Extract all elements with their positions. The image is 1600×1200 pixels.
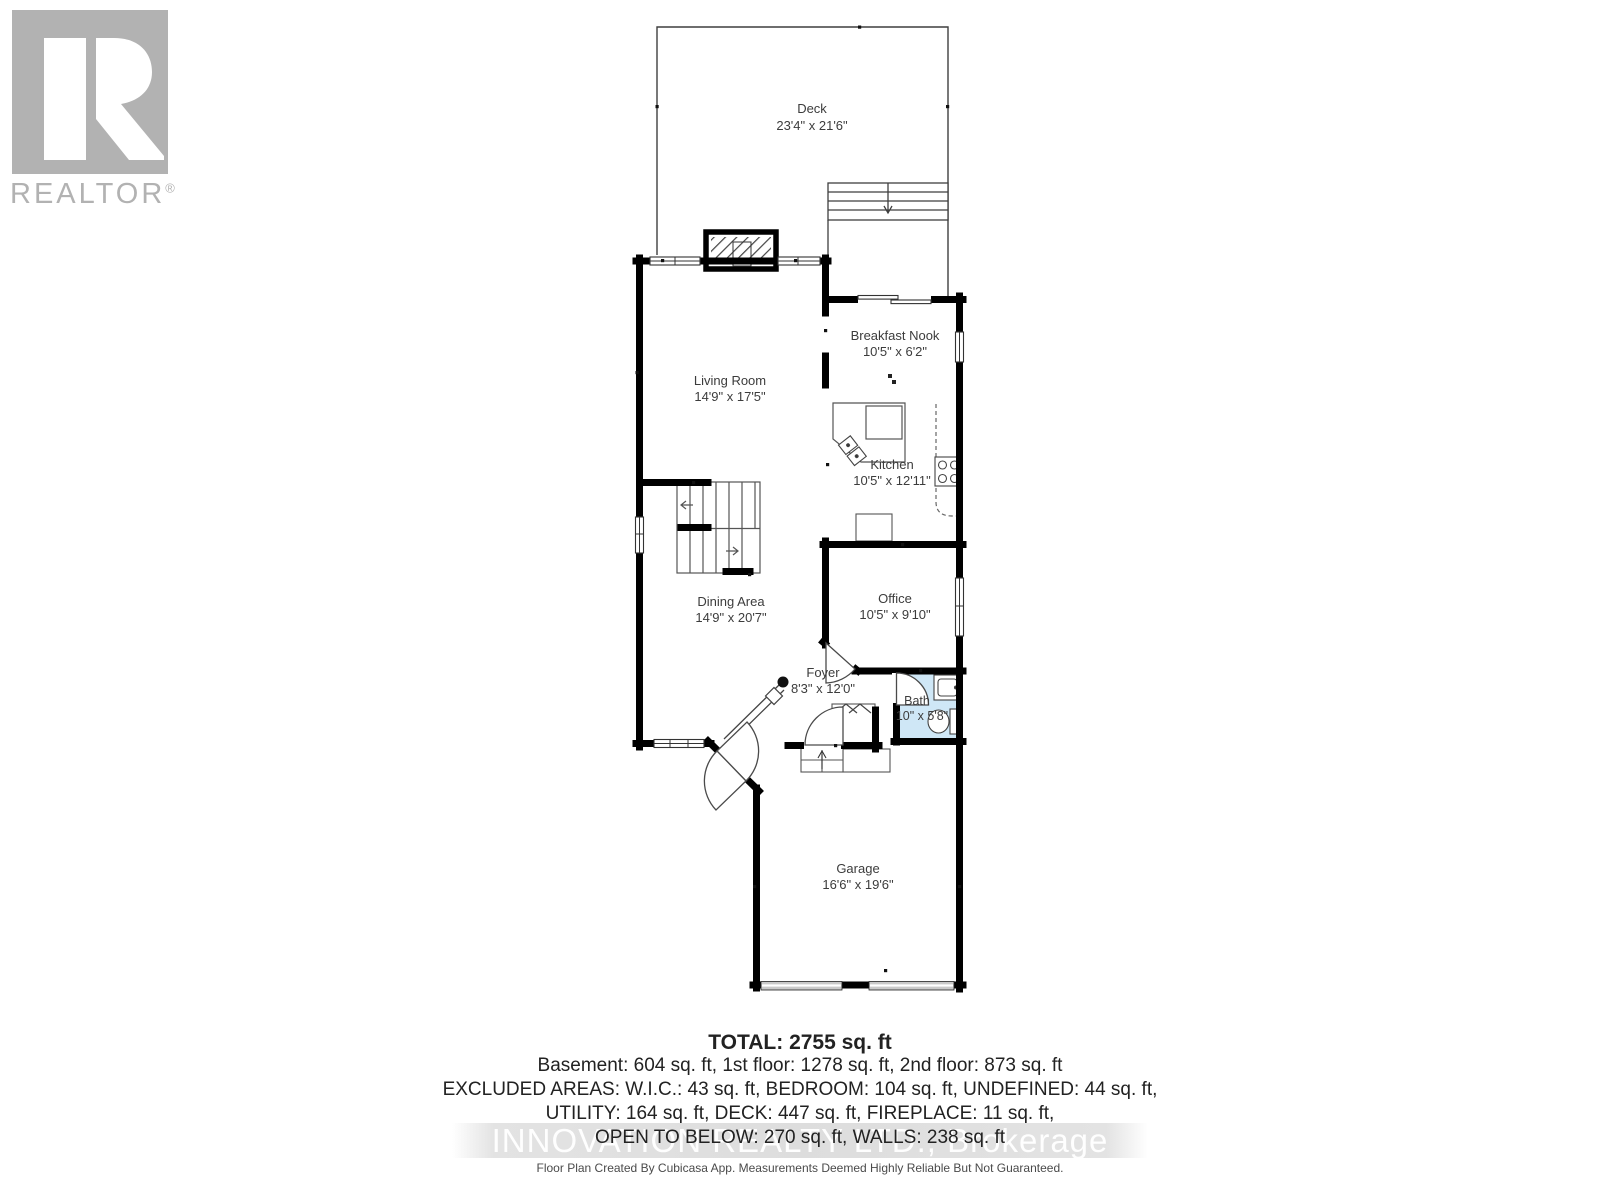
excluded-areas-line: EXCLUDED AREAS: W.I.C.: 43 sq. ft, BEDRO…	[0, 1079, 1600, 1101]
deck-stairs	[828, 183, 948, 258]
room-dims-foyer: 8'3" x 12'0"	[791, 681, 855, 696]
room-label-kitchen: Kitchen	[870, 457, 913, 472]
room-label-deck: Deck	[797, 101, 827, 116]
floor-areas-line: Basement: 604 sq. ft, 1st floor: 1278 sq…	[0, 1055, 1600, 1077]
room-dims-garage: 16'6" x 19'6"	[822, 877, 894, 892]
room-dims-deck: 23'4" x 21'6"	[776, 118, 848, 133]
room-label-foyer: Foyer	[806, 665, 840, 680]
kitchen-cabinet	[856, 514, 892, 541]
room-label-garage: Garage	[836, 861, 879, 876]
room-label-dining: Dining Area	[697, 594, 765, 609]
room-dims-kitchen: 10'5" x 12'11"	[853, 473, 931, 488]
open-below-walls-line: OPEN TO BELOW: 270 sq. ft, WALLS: 238 sq…	[0, 1127, 1600, 1149]
room-label-living: Living Room	[694, 373, 766, 388]
newel-post-cap	[778, 677, 789, 688]
room-dims-living: 14'9" x 17'5"	[694, 389, 766, 404]
room-label-office: Office	[878, 591, 912, 606]
entry-steps	[801, 748, 843, 772]
room-dims-bath: 10" x 5'8"	[896, 709, 948, 723]
room-dims-nook: 10'5" x 6'2"	[863, 344, 927, 359]
room-dims-dining: 14'9" x 20'7"	[695, 610, 767, 625]
room-label-nook: Breakfast Nook	[851, 328, 940, 343]
room-dims-office: 10'5" x 9'10"	[859, 607, 931, 622]
total-area-line: TOTAL: 2755 sq. ft	[0, 1031, 1600, 1055]
disclaimer-text: Floor Plan Created By Cubicasa App. Meas…	[0, 1161, 1600, 1175]
room-label-bath: Bath	[904, 694, 930, 708]
house-footprint	[633, 255, 966, 992]
